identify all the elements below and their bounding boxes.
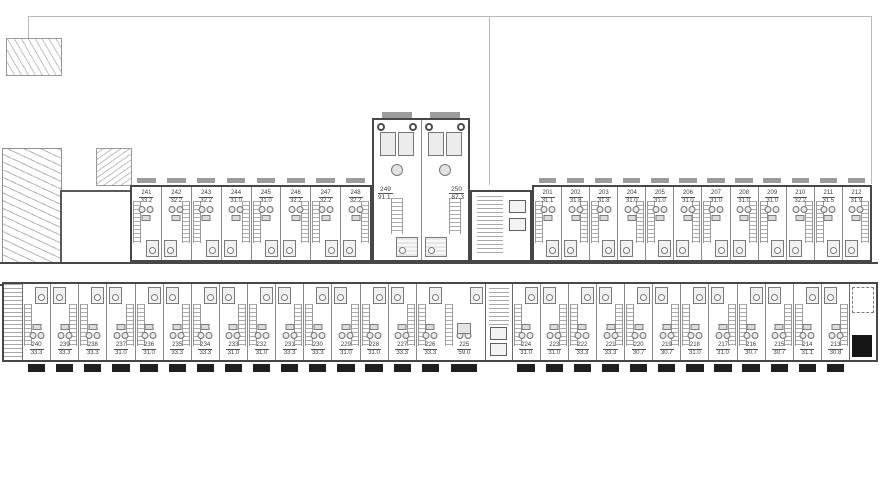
bathroom-pod	[525, 287, 538, 304]
unit-area: 31.0	[136, 350, 163, 357]
toilet-icon	[268, 247, 275, 254]
elevator	[490, 327, 507, 340]
canopy-dashed-outline	[852, 287, 874, 313]
table	[285, 324, 294, 330]
bed	[428, 132, 462, 156]
toilet-icon	[428, 247, 435, 254]
unit-number: 214	[800, 342, 814, 350]
balcony-stub	[602, 364, 619, 372]
toilet-icon	[209, 247, 216, 254]
balcony-stub	[707, 178, 724, 183]
balcony-stub	[623, 178, 640, 183]
table	[201, 324, 210, 330]
table	[60, 324, 69, 330]
unit-label: 23033.3	[304, 342, 331, 357]
unit-227: 22733.3	[388, 284, 416, 360]
unit-233: 23331.0	[219, 284, 247, 360]
balcony-stub	[430, 112, 460, 118]
unit-area: 33.3	[164, 350, 191, 357]
balcony-stub	[539, 178, 556, 183]
unit-number: 227	[395, 342, 409, 350]
bathroom-pod	[429, 287, 442, 304]
balcony-stub	[714, 364, 731, 372]
balcony-stub	[827, 364, 844, 372]
table	[145, 324, 154, 330]
bathroom-pod	[824, 287, 837, 304]
bathroom-pod	[278, 287, 291, 304]
unit-area: 30.7	[738, 350, 765, 357]
unit-number: 224	[519, 342, 533, 350]
unit-area: 31.5	[815, 198, 842, 205]
unit-area: 31.0	[513, 350, 540, 357]
bathroom-pod	[224, 240, 237, 257]
chairs	[318, 206, 333, 213]
unit-area: 32.2	[192, 198, 221, 205]
chairs	[288, 206, 303, 213]
bathroom-pod	[827, 240, 840, 257]
unit-number: 217	[716, 342, 730, 350]
chairs	[57, 332, 72, 339]
unit-area: 33.3	[192, 350, 219, 357]
balcony-stub	[316, 178, 334, 183]
unit-number: 216	[744, 342, 758, 350]
unit-label: 24133.2	[132, 190, 161, 205]
toilet-icon	[167, 247, 174, 254]
chairs	[659, 332, 674, 339]
unit-223: 22331.0	[540, 284, 568, 360]
unit-label: 21831.0	[681, 342, 708, 357]
stairs-hatch	[784, 304, 792, 346]
unit-label: 23833.3	[79, 342, 106, 357]
unit-label: 22931.0	[332, 342, 359, 357]
toilet-icon	[528, 294, 535, 301]
unit-label: 20431.0	[618, 190, 645, 205]
unit-207: 20731.0	[701, 187, 729, 260]
unit-number: 225	[457, 342, 471, 350]
chairs	[709, 206, 724, 213]
balcony-stub	[651, 178, 668, 183]
chairs	[793, 206, 808, 213]
bathroom-pod	[91, 287, 104, 304]
unit-215: 21530.7	[765, 284, 793, 360]
unit-label: 24033.3	[23, 342, 50, 357]
unit-area: 33.3	[304, 350, 331, 357]
toilet-icon	[328, 247, 335, 254]
stairs-hatch	[407, 304, 415, 346]
toilet-icon	[473, 294, 480, 301]
chairs	[519, 332, 534, 339]
balcony-stub	[84, 364, 101, 372]
table	[391, 164, 403, 176]
bathroom-pod	[146, 240, 159, 257]
toilet-icon	[602, 294, 609, 301]
stairs-hatch	[615, 304, 623, 346]
unit-area: 31.0	[618, 198, 645, 205]
unit-label: 23631.0	[136, 342, 163, 357]
balcony-stub	[253, 364, 270, 372]
bathroom-pod	[260, 287, 273, 304]
unit-area: 32.2	[341, 198, 370, 205]
balcony-stub	[137, 178, 155, 183]
unit-number: 211	[822, 190, 836, 198]
unit-label: 23231.0	[248, 342, 275, 357]
balcony-stub	[848, 178, 865, 183]
unit-area: 33.3	[569, 350, 596, 357]
stairs-hatch	[449, 198, 461, 234]
balcony-stub	[394, 364, 411, 372]
unit-245: 24531.0	[251, 187, 281, 260]
table	[571, 215, 580, 221]
unit-label: 22233.3	[569, 342, 596, 357]
unit-label: 24232.2	[162, 190, 191, 205]
unit-label: 24431.0	[222, 190, 251, 205]
balcony-stub	[686, 364, 703, 372]
unit-area: 31.0	[107, 350, 134, 357]
table	[690, 324, 699, 330]
unit-area: 59.0	[444, 350, 485, 357]
bathroom-pod	[771, 240, 784, 257]
bathroom-pod	[711, 287, 724, 304]
stairs-hatch	[514, 304, 522, 346]
bathroom-pod	[265, 240, 278, 257]
balcony-stub	[257, 178, 275, 183]
unit-238: 23833.3	[78, 284, 106, 360]
toilet-icon	[640, 294, 647, 301]
bathroom-pod	[658, 240, 671, 257]
toilet-icon	[281, 294, 288, 301]
chairs	[744, 332, 759, 339]
table	[606, 324, 615, 330]
table	[142, 215, 151, 221]
balcony-stub	[792, 178, 809, 183]
unit-211: 21131.5	[814, 187, 842, 260]
unit-label: 20731.0	[702, 190, 729, 205]
unit-number: 247	[319, 190, 333, 198]
unit-area: 31.0	[681, 350, 708, 357]
stairs-hatch	[671, 304, 679, 346]
chairs	[716, 332, 731, 339]
unit-area: 31.0	[361, 350, 388, 357]
unit-area: 31.8	[562, 198, 589, 205]
unit-label: 21431.1	[794, 342, 821, 357]
unit-number: 208	[737, 190, 751, 198]
toilet-icon	[263, 294, 270, 301]
unit-label: 22331.0	[541, 342, 568, 357]
stairs-hatch	[249, 304, 257, 346]
unit-area: 31.9	[843, 198, 870, 205]
toilet-icon	[394, 294, 401, 301]
unit-number: 236	[142, 342, 156, 350]
chairs	[603, 332, 618, 339]
unit-221: 22133.3	[596, 284, 624, 360]
balcony-stub	[167, 178, 185, 183]
unit-area: 31.0	[674, 198, 701, 205]
toilet-icon	[792, 247, 799, 254]
unit-area: 33.2	[132, 198, 161, 205]
stairs-hatch	[69, 304, 77, 346]
balcony-stub	[197, 364, 214, 372]
unit-220: 22030.7	[624, 284, 652, 360]
elevator	[509, 218, 526, 231]
bottom-units-band: 24033.323933.323833.323731.023631.023533…	[2, 282, 878, 362]
balcony-stub	[630, 364, 647, 372]
unit-number: 230	[311, 342, 325, 350]
toilet-icon	[149, 247, 156, 254]
balcony-stub	[546, 364, 563, 372]
bathroom-pod	[676, 240, 689, 257]
unit-label: 24832.2	[341, 190, 370, 205]
floor-plan: 24133.224232.224332.224431.024531.024632…	[0, 0, 880, 495]
unit-number: 210	[793, 190, 807, 198]
unit-number: 223	[547, 342, 561, 350]
unit-number: 221	[603, 342, 617, 350]
table	[740, 215, 749, 221]
unit-number: 205	[653, 190, 667, 198]
unit-number: 220	[632, 342, 646, 350]
toilet-icon	[753, 294, 760, 301]
site-boundary-drop	[489, 16, 490, 185]
unit-area: 33.3	[389, 350, 416, 357]
toilet-icon	[546, 294, 553, 301]
unit-219: 21930.7	[652, 284, 680, 360]
table	[173, 324, 182, 330]
balcony-stub	[365, 364, 382, 372]
unit-241: 24133.2	[132, 187, 161, 260]
table	[775, 324, 784, 330]
balcony-stub	[771, 364, 788, 372]
chairs	[169, 206, 184, 213]
table	[768, 215, 777, 221]
unit-area: 33.3	[23, 350, 50, 357]
stairs-hatch	[477, 196, 503, 256]
balcony-stub	[287, 178, 305, 183]
unit-label: 23933.3	[51, 342, 78, 357]
table	[370, 324, 379, 330]
site-boundary-left	[28, 16, 29, 40]
toilet-icon	[774, 247, 781, 254]
unit-number: 243	[199, 190, 213, 198]
unit-203: 20331.8	[589, 187, 617, 260]
unit-area: 87.3	[449, 194, 464, 201]
unit-area: 30.7	[625, 350, 652, 357]
chairs	[624, 206, 639, 213]
toilet-icon	[567, 247, 574, 254]
stairs-hatch	[24, 304, 32, 346]
stairs-hatch	[418, 304, 426, 346]
stair-core-left	[4, 284, 23, 360]
unit-number: 248	[349, 190, 363, 198]
balcony-stub	[346, 178, 364, 183]
stairs-hatch	[840, 304, 848, 346]
table	[439, 164, 451, 176]
table	[634, 324, 643, 330]
unit-area: 31.1	[794, 350, 821, 357]
unit-250: 25087.3	[421, 120, 469, 260]
unit-number: 237	[114, 342, 128, 350]
stairs-hatch	[182, 304, 190, 346]
table	[232, 215, 241, 221]
chairs	[652, 206, 667, 213]
unit-label: 24991.1	[378, 186, 393, 201]
bathroom-pod	[715, 240, 728, 257]
unit-label: 22133.3	[597, 342, 624, 357]
balcony-stub	[658, 364, 675, 372]
table	[351, 215, 360, 221]
bathroom-pod	[470, 287, 483, 304]
unit-216: 21630.7	[737, 284, 765, 360]
unit-235: 23533.3	[163, 284, 191, 360]
bathroom-pod	[564, 240, 577, 257]
ramp-hatch-small	[96, 148, 132, 186]
stairs-hatch	[80, 304, 88, 346]
unit-number: 218	[688, 342, 702, 350]
stairs-hatch	[391, 198, 403, 234]
bathroom-pod	[637, 287, 650, 304]
unit-number: 240	[30, 342, 44, 350]
unit-area: 31.0	[222, 198, 251, 205]
stairs-hatch	[294, 304, 302, 346]
bathroom-pod	[620, 240, 633, 257]
unit-number: 233	[226, 342, 240, 350]
balcony-stub	[422, 364, 439, 372]
stairs-hatch	[193, 304, 201, 346]
table	[426, 324, 435, 330]
unit-label: 22733.3	[389, 342, 416, 357]
unit-label: 20231.8	[562, 190, 589, 205]
table	[543, 215, 552, 221]
stairs-hatch	[795, 304, 803, 346]
toilet-icon	[830, 247, 837, 254]
chairs	[575, 332, 590, 339]
chairs	[849, 206, 864, 213]
toilet-icon	[38, 294, 45, 301]
unit-label: 21731.0	[709, 342, 736, 357]
ramp-hatch	[2, 148, 62, 264]
chairs	[199, 206, 214, 213]
unit-number: 222	[575, 342, 589, 350]
toilet-icon	[736, 247, 743, 254]
chairs	[85, 332, 100, 339]
table	[712, 215, 721, 221]
unit-label: 21231.9	[843, 190, 870, 205]
unit-number: 202	[569, 190, 583, 198]
bathroom-pod	[546, 240, 559, 257]
bed	[380, 132, 414, 156]
balcony-stub	[595, 178, 612, 183]
unit-239: 23933.3	[50, 284, 78, 360]
center-units-band: 24991.125087.3	[372, 118, 470, 262]
bathroom-pod	[316, 287, 329, 304]
bathroom-pod	[845, 240, 858, 257]
toilet-icon	[718, 247, 725, 254]
bathroom-pod	[425, 237, 447, 257]
unit-label: 20531.0	[646, 190, 673, 205]
unit-number: 234	[198, 342, 212, 350]
bathroom-pod	[204, 287, 217, 304]
chairs	[395, 332, 410, 339]
bathroom-pod	[334, 287, 347, 304]
toilet-icon	[827, 294, 834, 301]
unit-213: 21330.8	[821, 284, 849, 360]
balcony-stub	[337, 364, 354, 372]
unit-number: 239	[58, 342, 72, 350]
stairs-hatch	[489, 288, 509, 326]
balcony-stub	[799, 364, 816, 372]
chairs	[142, 332, 157, 339]
toilet-icon	[169, 294, 176, 301]
unit-label: 24732.2	[311, 190, 340, 205]
stairs-hatch	[137, 304, 145, 346]
toilet-icon	[286, 247, 293, 254]
chairs	[547, 332, 562, 339]
chairs	[540, 206, 555, 213]
table	[824, 215, 833, 221]
unit-number: 241	[139, 190, 153, 198]
unit-area: 32.2	[787, 198, 814, 205]
table	[313, 324, 322, 330]
unit-area: 32.2	[311, 198, 340, 205]
toilet-icon	[346, 247, 353, 254]
toilet-icon	[623, 247, 630, 254]
toilet-icon	[714, 294, 721, 301]
stairs-hatch	[126, 304, 134, 346]
unit-label: 22431.0	[513, 342, 540, 357]
chairs	[800, 332, 815, 339]
unit-number: 206	[681, 190, 695, 198]
unit-number: 238	[86, 342, 100, 350]
unit-242: 24232.2	[161, 187, 191, 260]
dining-table	[457, 323, 471, 334]
toilet-icon	[771, 294, 778, 301]
balcony-stub	[140, 364, 157, 372]
stairs-hatch	[626, 304, 634, 346]
unit-label: 20331.8	[590, 190, 617, 205]
unit-232: 23231.0	[247, 284, 275, 360]
balcony-stub	[382, 112, 412, 118]
bathroom-pod	[581, 287, 594, 304]
bathroom-pod	[396, 237, 418, 257]
chairs	[680, 206, 695, 213]
unit-area: 31.8	[590, 198, 617, 205]
site-boundary-top	[28, 16, 872, 17]
toilet-icon	[605, 247, 612, 254]
top-right-units-band: 20131.120231.820331.820431.020531.020631…	[532, 185, 872, 262]
chairs	[423, 332, 438, 339]
chairs	[258, 206, 273, 213]
chairs	[568, 206, 583, 213]
unit-label: 21032.2	[787, 190, 814, 205]
balcony-stub	[112, 364, 129, 372]
chairs	[348, 206, 363, 213]
unit-area: 32.2	[162, 198, 191, 205]
chairs	[310, 332, 325, 339]
unit-area: 32.2	[281, 198, 310, 205]
unit-label: 23433.3	[192, 342, 219, 357]
balcony-stub	[225, 364, 242, 372]
unit-249: 24991.1	[374, 120, 421, 260]
bathroom-pod	[35, 287, 48, 304]
unit-area: 33.3	[417, 350, 444, 357]
unit-label: 24632.2	[281, 190, 310, 205]
toilet-icon	[679, 247, 686, 254]
unit-243: 24332.2	[191, 187, 221, 260]
table	[88, 324, 97, 330]
unit-201: 20131.1	[534, 187, 561, 260]
chairs	[377, 123, 417, 131]
unit-number: 204	[625, 190, 639, 198]
toilet-icon	[549, 247, 556, 254]
stairs-hatch	[362, 304, 370, 346]
